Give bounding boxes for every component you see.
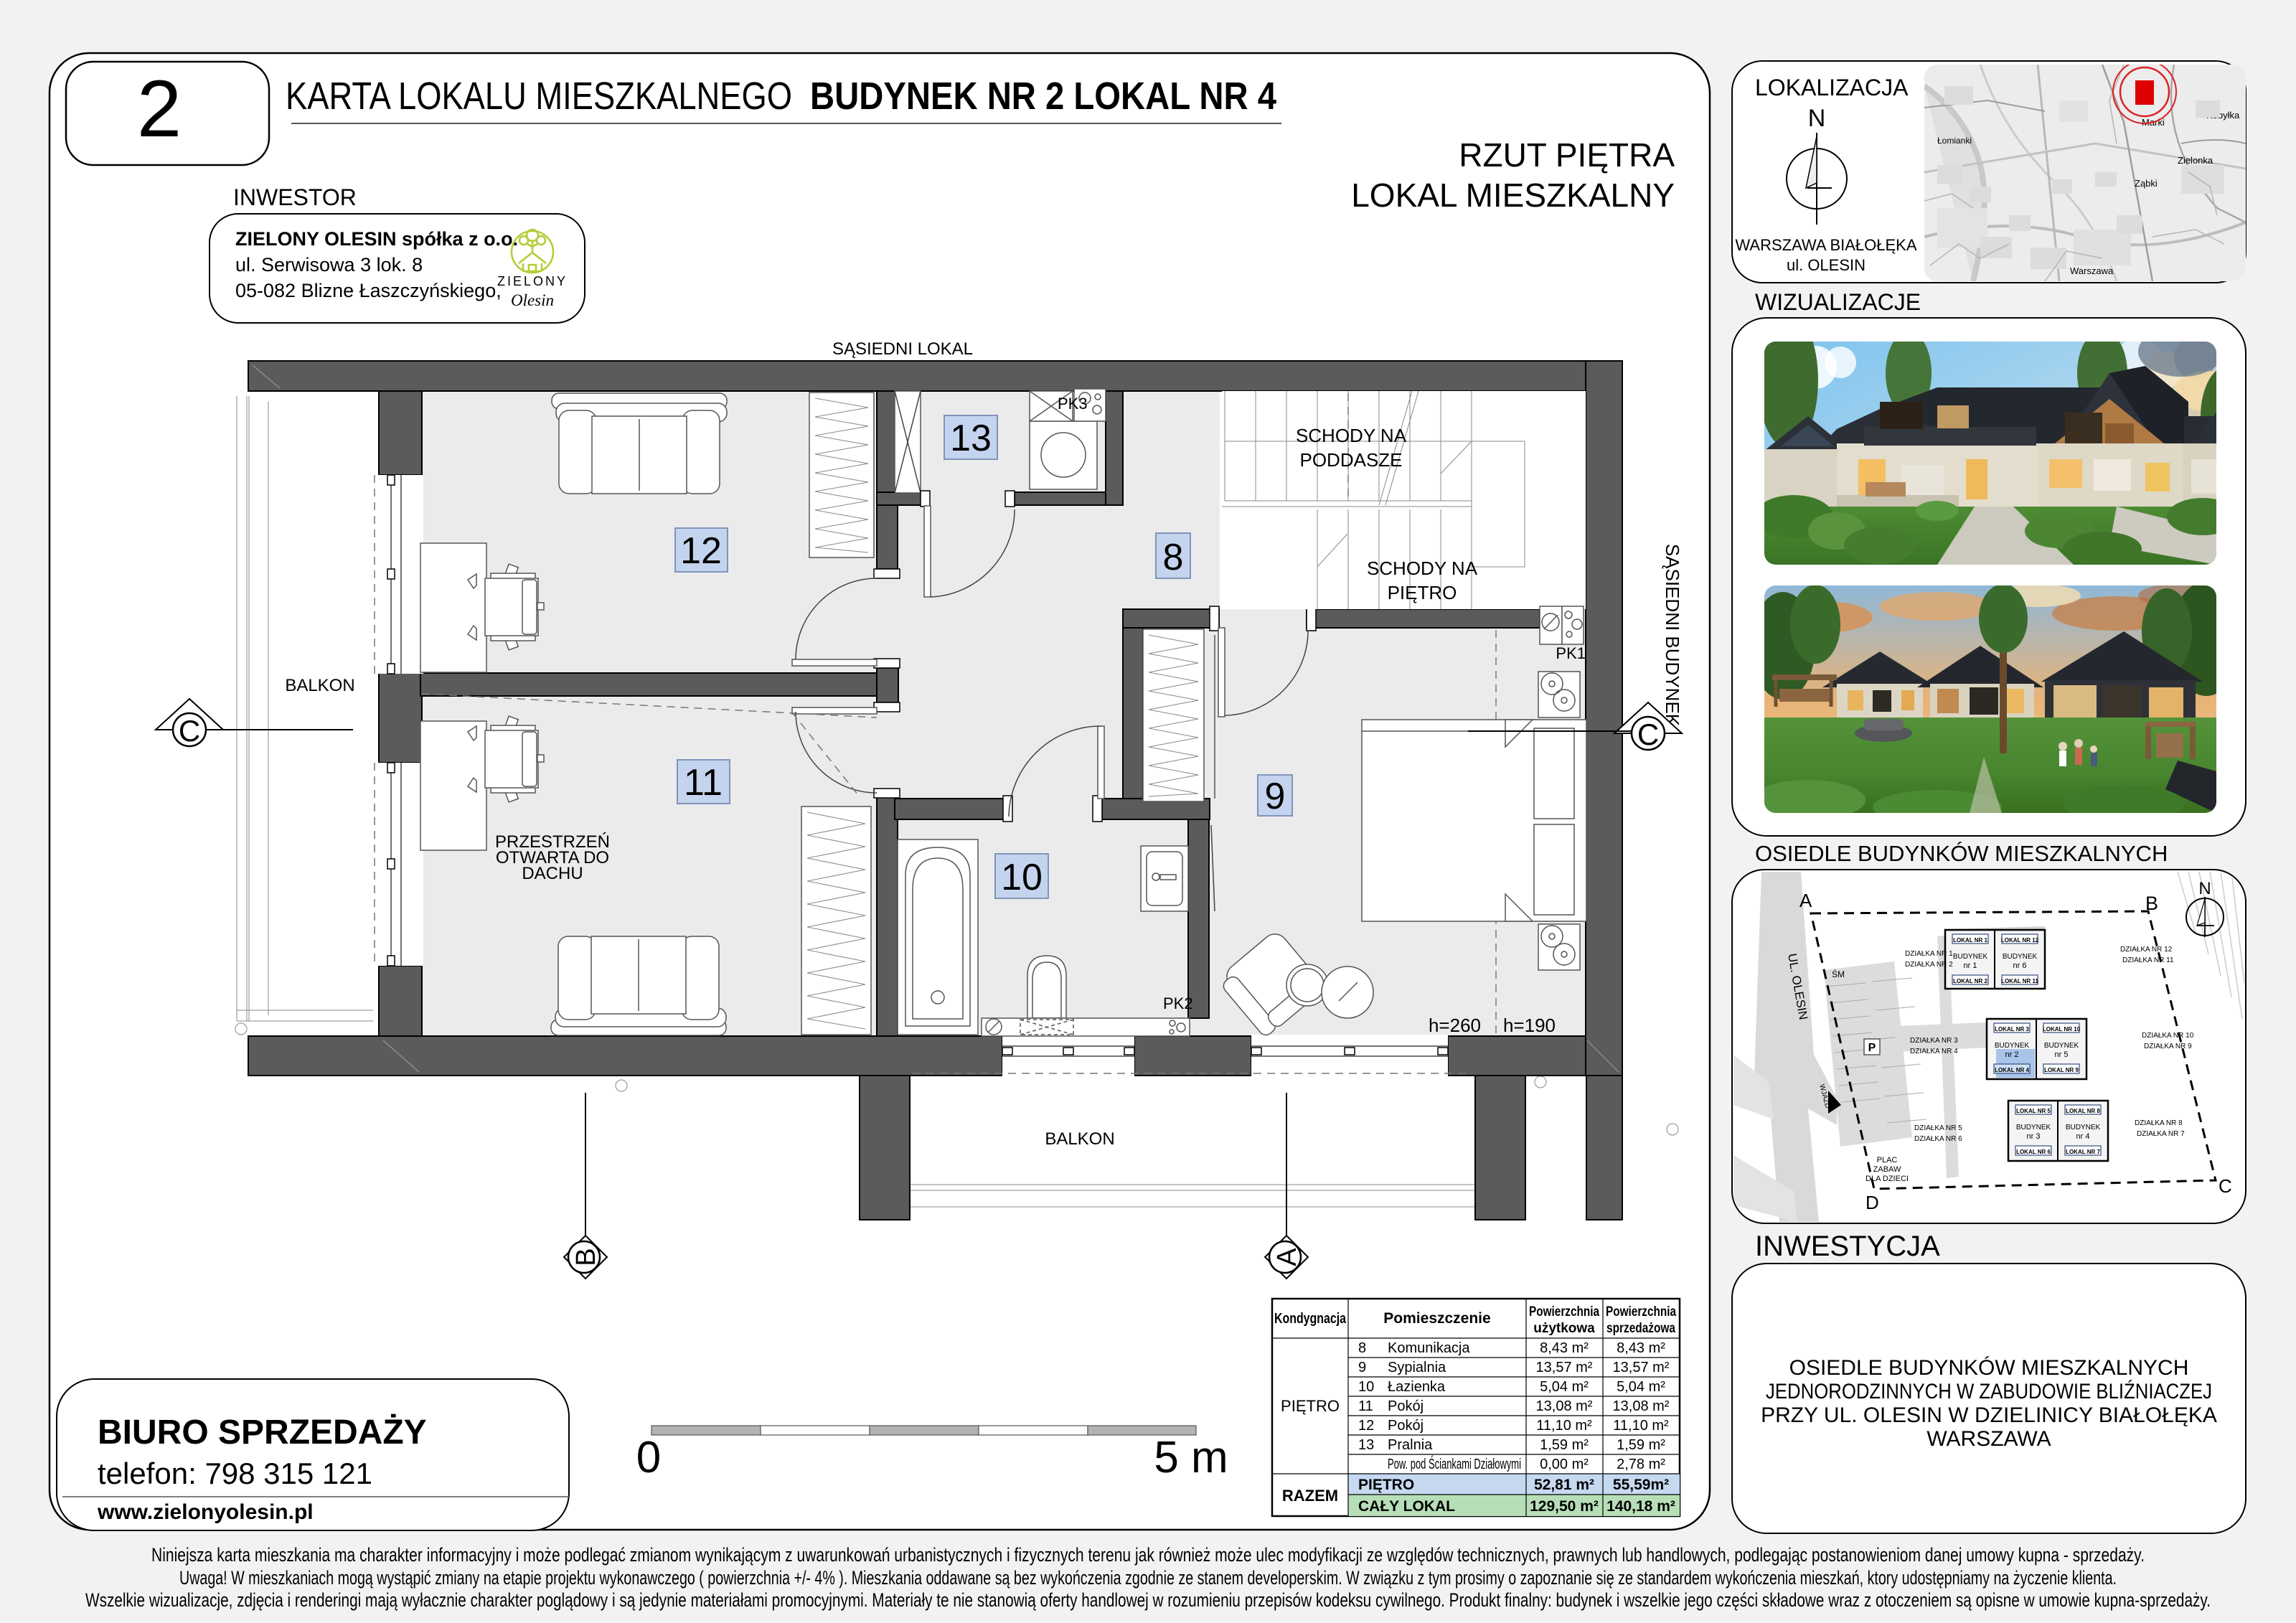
svg-text:Uwaga! W mieszkaniach mogą wys: Uwaga! W mieszkaniach mogą wystąpić zmia… <box>179 1567 2117 1589</box>
svg-text:BUDYNEK NR 2 LOKAL NR 4: BUDYNEK NR 2 LOKAL NR 4 <box>810 75 1276 118</box>
svg-text:LOKAL NR 1: LOKAL NR 1 <box>1953 937 1987 944</box>
svg-text:PIĘTRO: PIĘTRO <box>1281 1397 1340 1415</box>
svg-text:Powierzchnia: Powierzchnia <box>1529 1304 1599 1319</box>
svg-text:55,59m²: 55,59m² <box>1613 1477 1669 1493</box>
svg-text:LOKAL MIESZKALNY: LOKAL MIESZKALNY <box>1351 177 1675 214</box>
svg-text:nr 2: nr 2 <box>2005 1050 2019 1059</box>
svg-text:PODDASZE: PODDASZE <box>1299 449 1402 471</box>
svg-text:D: D <box>1865 1192 1879 1213</box>
svg-text:DZIAŁKA NR 11: DZIAŁKA NR 11 <box>2122 956 2174 964</box>
svg-text:5,04 m²: 5,04 m² <box>1617 1379 1665 1395</box>
svg-text:RAZEM: RAZEM <box>1282 1487 1338 1505</box>
svg-text:BUDYNEK: BUDYNEK <box>1995 1042 2030 1050</box>
svg-text:Łomianki: Łomianki <box>1937 136 1972 146</box>
svg-text:129,50 m²: 129,50 m² <box>1530 1498 1599 1515</box>
svg-text:BALKON: BALKON <box>1045 1129 1114 1149</box>
svg-text:WIZUALIZACJE: WIZUALIZACJE <box>1755 289 1921 315</box>
svg-text:WARSZAWA: WARSZAWA <box>1926 1427 2051 1451</box>
svg-text:LOKAL NR 12: LOKAL NR 12 <box>2001 937 2039 944</box>
svg-text:13,08 m²: 13,08 m² <box>1613 1398 1670 1414</box>
svg-text:DZIAŁKA NR 2: DZIAŁKA NR 2 <box>1905 961 1953 969</box>
svg-text:2: 2 <box>137 64 182 154</box>
svg-text:DZIAŁKA NR 5: DZIAŁKA NR 5 <box>1914 1124 1962 1132</box>
svg-text:12: 12 <box>1358 1418 1374 1434</box>
svg-text:1,59 m²: 1,59 m² <box>1540 1437 1589 1453</box>
svg-text:ZIELONY: ZIELONY <box>497 274 568 288</box>
svg-text:www.zielonyolesin.pl: www.zielonyolesin.pl <box>97 1500 314 1524</box>
svg-text:BUDYNEK: BUDYNEK <box>2044 1042 2079 1050</box>
svg-text:11: 11 <box>1358 1398 1373 1414</box>
svg-text:DZIAŁKA NR 10: DZIAŁKA NR 10 <box>2142 1032 2194 1040</box>
svg-text:INWESTYCJA: INWESTYCJA <box>1755 1231 1940 1262</box>
svg-text:P: P <box>1868 1042 1876 1054</box>
svg-text:ZABAW: ZABAW <box>1873 1165 1901 1174</box>
svg-text:Zielonka: Zielonka <box>2178 155 2213 166</box>
svg-text:DLA DZIECI: DLA DZIECI <box>1865 1175 1909 1183</box>
svg-text:9: 9 <box>1265 776 1286 817</box>
svg-text:DZIAŁKA NR 7: DZIAŁKA NR 7 <box>2137 1130 2185 1138</box>
svg-text:PK2: PK2 <box>1163 994 1193 1012</box>
svg-text:Niniejsza karta mieszkania ma: Niniejsza karta mieszkania ma charakter … <box>151 1544 2145 1566</box>
svg-text:INWESTOR: INWESTOR <box>233 184 357 210</box>
svg-text:Olesin: Olesin <box>511 291 554 309</box>
svg-text:B: B <box>2145 893 2158 914</box>
svg-text:10: 10 <box>1001 857 1043 898</box>
svg-text:Pow. pod Ściankami Działowymi: Pow. pod Ściankami Działowymi <box>1388 1455 1521 1472</box>
svg-text:140,18 m²: 140,18 m² <box>1606 1498 1675 1515</box>
svg-text:PIĘTRO: PIĘTRO <box>1388 582 1457 603</box>
svg-text:nr 1: nr 1 <box>1964 961 1977 970</box>
svg-text:13,08 m²: 13,08 m² <box>1536 1398 1593 1414</box>
svg-text:11,10 m²: 11,10 m² <box>1613 1418 1669 1434</box>
svg-text:0: 0 <box>636 1433 661 1482</box>
svg-text:nr 4: nr 4 <box>2076 1132 2090 1141</box>
svg-text:0,00 m²: 0,00 m² <box>1540 1457 1589 1472</box>
svg-text:LOKAL NR 10: LOKAL NR 10 <box>2043 1026 2081 1032</box>
svg-text:12: 12 <box>680 530 722 572</box>
svg-text:PIĘTRO: PIĘTRO <box>1358 1477 1414 1493</box>
svg-text:Kondygnacja: Kondygnacja <box>1274 1311 1347 1327</box>
svg-text:A: A <box>1799 890 1812 911</box>
svg-text:CAŁY LOKAL: CAŁY LOKAL <box>1358 1498 1455 1515</box>
svg-text:LOKAL NR 2: LOKAL NR 2 <box>1953 978 1987 984</box>
svg-text:05-082 Blizne Łaszczyńskiego,: 05-082 Blizne Łaszczyńskiego, <box>235 280 502 301</box>
svg-text:Ząbki: Ząbki <box>2135 178 2158 189</box>
svg-text:BALKON: BALKON <box>285 676 354 695</box>
svg-text:telefon: 798 315 121: telefon: 798 315 121 <box>98 1457 372 1490</box>
svg-text:8: 8 <box>1358 1340 1366 1356</box>
svg-text:SCHODY NA: SCHODY NA <box>1296 425 1407 446</box>
svg-text:11: 11 <box>684 762 723 804</box>
svg-text:ŚM: ŚM <box>1832 969 1845 979</box>
svg-text:LOKAL NR 7: LOKAL NR 7 <box>2066 1149 2100 1155</box>
svg-text:DZIAŁKA NR 8: DZIAŁKA NR 8 <box>2135 1119 2183 1127</box>
svg-text:Pokój: Pokój <box>1388 1418 1424 1434</box>
svg-text:13,57 m²: 13,57 m² <box>1613 1360 1670 1375</box>
svg-text:Łazienka: Łazienka <box>1388 1379 1446 1395</box>
svg-text:ul. Serwisowa 3 lok. 8: ul. Serwisowa 3 lok. 8 <box>235 254 423 276</box>
svg-text:DZIAŁKA NR 6: DZIAŁKA NR 6 <box>1914 1135 1962 1143</box>
svg-text:LOKAL NR 8: LOKAL NR 8 <box>2066 1108 2100 1114</box>
svg-text:8,43 m²: 8,43 m² <box>1617 1340 1665 1356</box>
svg-text:13: 13 <box>1358 1437 1374 1453</box>
svg-text:LOKAL NR 9: LOKAL NR 9 <box>2044 1067 2079 1073</box>
svg-text:PRZY UL. OLESIN W DZIELINICY: PRZY UL. OLESIN W DZIELINICY BIAŁOŁĘKA <box>1761 1403 2217 1427</box>
svg-text:N: N <box>1808 105 1826 132</box>
svg-text:PK3: PK3 <box>1058 395 1088 413</box>
svg-text:LOKALIZACJA: LOKALIZACJA <box>1755 75 1909 100</box>
svg-text:A: A <box>1272 1248 1302 1266</box>
svg-text:B: B <box>571 1248 601 1266</box>
svg-text:Pokój: Pokój <box>1388 1398 1424 1414</box>
svg-text:2,78 m²: 2,78 m² <box>1617 1457 1665 1472</box>
svg-text:Komunikacja: Komunikacja <box>1388 1340 1470 1356</box>
svg-text:BUDYNEK: BUDYNEK <box>2016 1124 2051 1132</box>
svg-text:8,43 m²: 8,43 m² <box>1540 1340 1589 1356</box>
svg-text:BUDYNEK: BUDYNEK <box>1953 953 1988 961</box>
svg-text:JEDNORODZINNYCH W ZABUDOWIE BL: JEDNORODZINNYCH W ZABUDOWIE BLIŹNIACZEJ <box>1766 1380 2212 1403</box>
svg-text:DZIAŁKA NR 4: DZIAŁKA NR 4 <box>1910 1048 1958 1055</box>
svg-text:DZIAŁKA NR 3: DZIAŁKA NR 3 <box>1910 1037 1958 1045</box>
svg-text:nr 5: nr 5 <box>2055 1050 2069 1059</box>
svg-text:52,81 m²: 52,81 m² <box>1534 1477 1594 1493</box>
svg-text:Pralnia: Pralnia <box>1388 1437 1433 1453</box>
svg-text:BIURO SPRZEDAŻY: BIURO SPRZEDAŻY <box>98 1413 427 1452</box>
svg-text:5,04 m²: 5,04 m² <box>1540 1379 1589 1395</box>
svg-text:BUDYNEK: BUDYNEK <box>2003 953 2038 961</box>
svg-text:użytkowa: użytkowa <box>1533 1321 1595 1336</box>
svg-text:N: N <box>2198 879 2211 898</box>
svg-text:ul. OLESIN: ul. OLESIN <box>1787 256 1865 274</box>
svg-text:1,59 m²: 1,59 m² <box>1617 1437 1665 1453</box>
svg-text:RZUT PIĘTRA: RZUT PIĘTRA <box>1459 136 1675 174</box>
svg-text:Powierzchnia: Powierzchnia <box>1606 1304 1676 1319</box>
svg-text:ZIELONY OLESIN spółka z o.o.: ZIELONY OLESIN spółka z o.o. <box>235 228 518 250</box>
svg-text:WARSZAWA BIAŁOŁĘKA: WARSZAWA BIAŁOŁĘKA <box>1735 236 1916 254</box>
svg-text:LOKAL NR 5: LOKAL NR 5 <box>2016 1108 2051 1114</box>
svg-text:5 m: 5 m <box>1154 1433 1228 1482</box>
svg-text:SCHODY NA: SCHODY NA <box>1367 558 1478 579</box>
svg-text:LOKAL NR 4: LOKAL NR 4 <box>1995 1067 2029 1073</box>
svg-text:PLAC: PLAC <box>1877 1156 1898 1165</box>
svg-text:8: 8 <box>1163 537 1184 578</box>
svg-text:nr 6: nr 6 <box>2013 961 2027 970</box>
svg-text:LOKAL NR 3: LOKAL NR 3 <box>1995 1026 2029 1032</box>
svg-text:nr 3: nr 3 <box>2027 1132 2041 1141</box>
svg-text:KARTA LOKALU MIESZKALNEGO: KARTA LOKALU MIESZKALNEGO <box>286 75 792 118</box>
svg-text:DZIAŁKA NR 9: DZIAŁKA NR 9 <box>2144 1043 2192 1050</box>
svg-text:13: 13 <box>950 418 992 459</box>
svg-text:DZIAŁKA NR 1: DZIAŁKA NR 1 <box>1905 950 1953 958</box>
svg-text:LOKAL NR 6: LOKAL NR 6 <box>2016 1149 2051 1155</box>
svg-text:DZIAŁKA NR 12: DZIAŁKA NR 12 <box>2120 946 2173 954</box>
svg-text:DACHU: DACHU <box>522 864 583 883</box>
svg-text:Wszelkie wizualizacje, zdjęcia: Wszelkie wizualizacje, zdjęcia i renderi… <box>85 1589 2211 1611</box>
svg-text:SĄSIEDNI LOKAL: SĄSIEDNI LOKAL <box>832 339 973 359</box>
svg-text:SĄSIEDNI BUDYNEK: SĄSIEDNI BUDYNEK <box>1662 544 1683 727</box>
svg-text:BUDYNEK: BUDYNEK <box>2066 1124 2101 1132</box>
svg-text:h=260: h=260 <box>1429 1015 1481 1036</box>
svg-text:13,57 m²: 13,57 m² <box>1536 1360 1593 1375</box>
svg-text:C: C <box>179 714 200 748</box>
svg-text:sprzedażowa: sprzedażowa <box>1606 1321 1675 1336</box>
svg-text:PK1: PK1 <box>1556 644 1586 662</box>
svg-text:LOKAL NR 11: LOKAL NR 11 <box>2001 978 2038 984</box>
svg-text:h=190: h=190 <box>1503 1015 1556 1036</box>
svg-text:OSIEDLE BUDYNKÓW MIESZKALNYCH: OSIEDLE BUDYNKÓW MIESZKALNYCH <box>1789 1356 2189 1380</box>
svg-text:11,10 m²: 11,10 m² <box>1536 1418 1592 1434</box>
svg-text:C: C <box>2219 1175 2232 1197</box>
svg-text:Sypialnia: Sypialnia <box>1388 1360 1446 1375</box>
svg-text:10: 10 <box>1358 1379 1374 1395</box>
svg-text:Pomieszczenie: Pomieszczenie <box>1383 1310 1490 1327</box>
svg-text:Warszawa: Warszawa <box>2070 265 2114 276</box>
svg-text:OSIEDLE BUDYNKÓW MIESZKALNYCH: OSIEDLE BUDYNKÓW MIESZKALNYCH <box>1755 841 2168 866</box>
svg-text:C: C <box>1637 718 1659 751</box>
svg-text:9: 9 <box>1358 1360 1366 1375</box>
